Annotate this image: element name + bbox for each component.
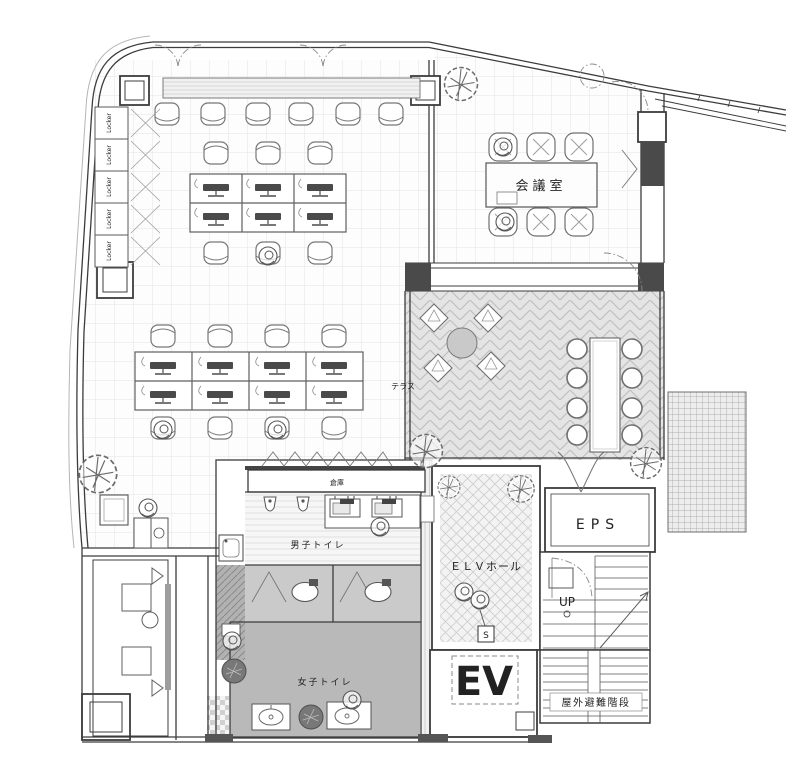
counter-chair [155, 103, 179, 125]
floor-plan-page: 会議室 テラス 倉庫 男子トイレ 女子トイレ ＥＬＶホール EPS UP 屋外避… [0, 0, 787, 770]
eps-label: EPS [576, 517, 620, 533]
tree [410, 435, 443, 468]
office-chair [308, 242, 332, 264]
kitchenette [134, 518, 168, 548]
corridor-shelf [421, 496, 434, 522]
terrace-label: テラス [391, 382, 415, 391]
locker-label: Locker [106, 241, 113, 261]
office-chair [204, 142, 228, 164]
lavatory-sink [330, 496, 360, 517]
faucet [225, 540, 228, 543]
office-chair [208, 417, 232, 439]
locker-label: Locker [106, 177, 113, 197]
office-chair [308, 142, 332, 164]
meeting-table-inset [497, 192, 517, 204]
fixture-swirl [223, 632, 241, 650]
seated-person [268, 421, 286, 439]
terrace-round-table [447, 328, 477, 358]
terrace-stool-round [622, 425, 642, 445]
office-chair [208, 325, 232, 347]
terrace-stool-round [567, 368, 587, 388]
tree [631, 448, 662, 479]
terrace-stool-round [567, 339, 587, 359]
terrace-stool-round [622, 398, 642, 418]
office-chair [204, 242, 228, 264]
counter-chair [246, 103, 270, 125]
tree [438, 476, 460, 498]
counter-chair [289, 103, 313, 125]
up-label: UP [559, 595, 575, 609]
office-chair [256, 142, 280, 164]
office-chair [322, 417, 346, 439]
meeting-chair [565, 208, 593, 236]
outdoor-stairs-label: 屋外避難階段 [562, 696, 631, 709]
tree [445, 68, 478, 101]
person-figure [371, 518, 389, 536]
tile-strip [207, 696, 229, 738]
seated-person [496, 213, 514, 231]
hall-plant [471, 591, 489, 609]
balcony-grating [668, 392, 746, 532]
counter-chair [201, 103, 225, 125]
elv-hall-label: ＥＬＶホール [450, 560, 522, 573]
locker-label: Locker [106, 113, 113, 133]
terrace-stool-round [567, 425, 587, 445]
storage-room-items [122, 568, 163, 696]
meeting-chair [565, 133, 593, 161]
counter-chair [379, 103, 403, 125]
storage-label: 倉庫 [330, 478, 344, 487]
person-figure [139, 499, 157, 517]
office-chair [322, 325, 346, 347]
terrace-stool-round [567, 398, 587, 418]
seated-person [154, 421, 172, 439]
desk-cluster-2 [135, 352, 363, 410]
floor-plan-svg: 会議室 テラス 倉庫 男子トイレ 女子トイレ ＥＬＶホール EPS UP 屋外避… [0, 0, 787, 770]
meeting-room-label: 会議室 [515, 178, 566, 194]
locker-label: Locker [106, 209, 113, 229]
tree [79, 455, 116, 492]
tree [508, 476, 534, 502]
window-counter [163, 78, 420, 98]
hall-plant [455, 583, 473, 601]
terrace-long-table [590, 338, 620, 452]
plant-swirl [343, 691, 361, 709]
plant [222, 659, 246, 683]
seated-person [259, 247, 277, 265]
switch-box-label: S [483, 631, 489, 641]
seated-person [494, 138, 512, 156]
locker-label: Locker [106, 145, 113, 165]
mens-toilet-label: 男子トイレ [290, 540, 345, 551]
lavatory-sink [372, 496, 402, 517]
terrace-stool-round [622, 368, 642, 388]
womens-toilet-label: 女子トイレ [297, 676, 352, 688]
plant [299, 705, 323, 729]
ev-label: EV [455, 659, 513, 705]
meeting-chair [527, 208, 555, 236]
counter-chair [336, 103, 360, 125]
office-chair [151, 325, 175, 347]
office-chair [265, 325, 289, 347]
terrace-stool-round [622, 339, 642, 359]
meeting-chair [527, 133, 555, 161]
